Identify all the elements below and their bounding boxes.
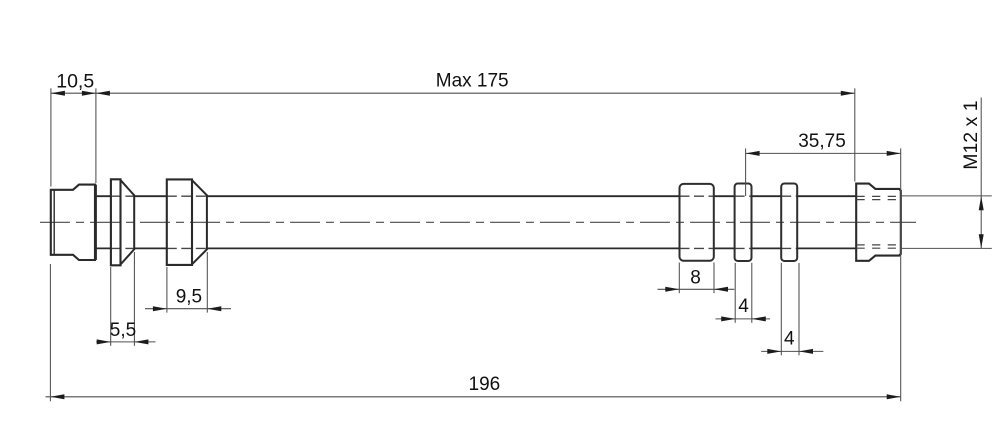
svg-text:10,5: 10,5 bbox=[56, 71, 94, 93]
svg-text:4: 4 bbox=[784, 328, 795, 349]
svg-text:Max 175: Max 175 bbox=[436, 71, 509, 92]
svg-text:35,75: 35,75 bbox=[798, 131, 846, 152]
svg-text:4: 4 bbox=[738, 296, 749, 317]
svg-text:5,5: 5,5 bbox=[110, 320, 136, 341]
svg-text:M12 x 1: M12 x 1 bbox=[960, 100, 982, 169]
svg-text:9,5: 9,5 bbox=[176, 287, 202, 308]
svg-text:196: 196 bbox=[469, 374, 501, 395]
svg-text:8: 8 bbox=[690, 268, 701, 289]
